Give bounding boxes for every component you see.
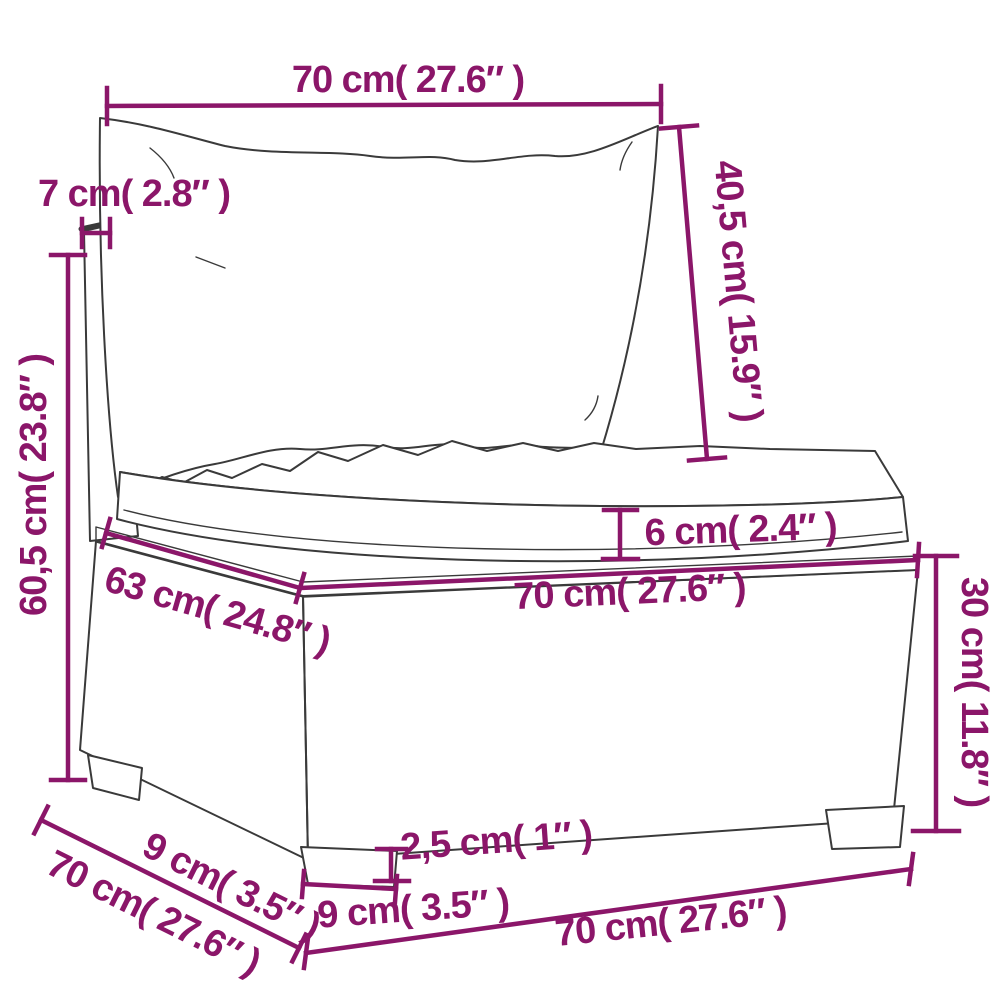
dim-frame-thickness-label: 7 cm( 2.8″ ) (38, 173, 230, 215)
dim-cushion-thickness-label: 6 cm( 2.4″ ) (644, 506, 837, 555)
dim-foot-height: 2,5 cm( 1″ ) (375, 813, 593, 881)
dim-bottom-width-label: 70 cm( 27.6″ ) (553, 889, 788, 955)
dim-total-height: 60,5 cm( 23.8″ ) (13, 255, 85, 780)
dim-base-height-label: 30 cm( 11.8″ ) (953, 577, 995, 807)
dim-back-cushion-height-label: 40,5 cm( 15.9″ ) (706, 159, 771, 424)
dim-seat-width-label: 70 cm( 27.6″ ) (512, 566, 746, 618)
dim-top-width: 70 cm( 27.6″ ) (107, 59, 661, 124)
sofa-foot-right (826, 806, 904, 849)
sofa-illustration (80, 118, 918, 887)
dim-base-height: 30 cm( 11.8″ ) (913, 556, 995, 831)
dim-total-height-label: 60,5 cm( 23.8″ ) (13, 354, 55, 616)
sofa-dimension-diagram: 70 cm( 27.6″ ) 7 cm( 2.8″ ) 40,5 cm( 15.… (0, 0, 1000, 1000)
dim-back-cushion-height: 40,5 cm( 15.9″ ) (661, 126, 770, 461)
dimension-diagram-page: 70 cm( 27.6″ ) 7 cm( 2.8″ ) 40,5 cm( 15.… (0, 0, 1000, 1000)
dim-side-depth-group: 9 cm( 3.5″ ) 70 cm( 27.6″ ) (34, 807, 326, 984)
dim-foot-height-label: 2,5 cm( 1″ ) (399, 813, 594, 868)
sofa-foot-left (88, 755, 142, 800)
dim-top-width-label: 70 cm( 27.6″ ) (292, 59, 524, 101)
